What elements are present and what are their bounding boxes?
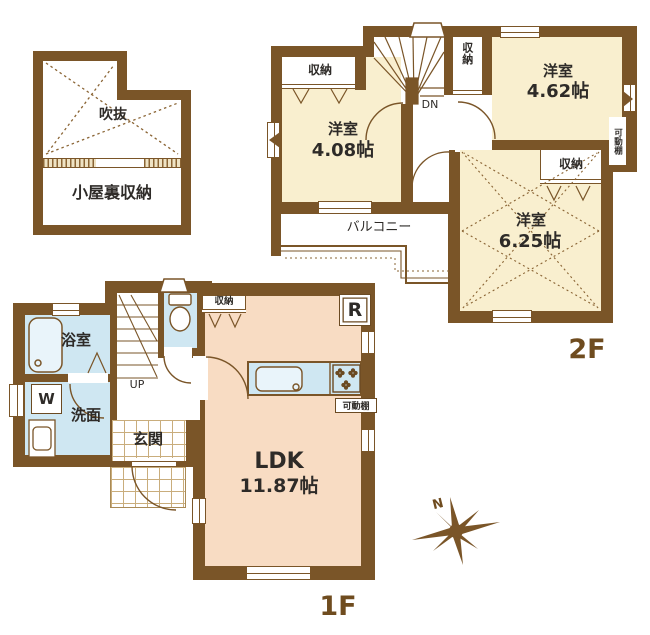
f2-room-east-size: 4.62帖 — [527, 83, 589, 102]
f2-closet-west-rod — [282, 84, 358, 89]
attic-divider — [144, 158, 181, 168]
f1-ldk-name: LDK — [254, 450, 303, 473]
f2-wall-stub — [271, 214, 281, 256]
window — [492, 310, 532, 323]
f1-toilet-room — [164, 293, 197, 348]
f2-closet-south-label: 収納 — [559, 158, 583, 171]
f1-kitchen-counter — [247, 361, 362, 396]
balcony-railing — [281, 246, 452, 283]
f1-bath-label: 浴室 — [61, 333, 91, 349]
f1-stairs-up-label: UP — [130, 379, 145, 391]
f2-movable-shelf-badge: 可動棚 — [609, 117, 626, 165]
attic-void-label: 吹抜 — [99, 108, 127, 123]
window — [192, 498, 206, 524]
f2-room-east-name: 洋室 — [543, 64, 573, 80]
f2-room-west-size: 4.08帖 — [312, 142, 374, 161]
window — [623, 84, 636, 112]
f2-closet-mid-rod — [453, 90, 482, 95]
f1-entrance-label: 玄関 — [133, 432, 163, 448]
f1-ldk-door-gap — [193, 356, 208, 400]
attic-divider — [43, 158, 96, 168]
f1-washer-label: W — [38, 390, 55, 408]
window — [500, 26, 540, 38]
attic-divider-opening — [96, 158, 144, 168]
window — [361, 429, 375, 452]
f1-ldk-room — [205, 296, 361, 566]
f1-bath-door-gap — [68, 373, 108, 383]
f1-ldk-size: 11.87帖 — [239, 477, 318, 497]
f1-floor-label: 1F — [319, 591, 356, 622]
f1-movable-shelf-label: 可動棚 — [342, 399, 369, 412]
window — [9, 384, 24, 417]
window — [267, 122, 280, 158]
f2-room-west-name: 洋室 — [328, 122, 358, 138]
f2-room-south-size: 6.25帖 — [499, 233, 561, 252]
f1-refrigerator-badge: R — [339, 294, 371, 326]
f2-closet-south-rod — [540, 179, 601, 184]
floor-plan: 可動棚 R 可動棚 W — [0, 0, 650, 635]
f1-closet-label: 収納 — [214, 297, 233, 307]
balcony-sliding-door — [318, 201, 372, 214]
window — [52, 303, 80, 316]
f2-room-south-name: 洋室 — [516, 213, 546, 229]
window — [361, 331, 375, 354]
f1-refrigerator-label: R — [348, 299, 363, 321]
f1-closet-rod — [202, 309, 246, 313]
f1-movable-shelf-badge: 可動棚 — [335, 398, 377, 413]
f1-washer-box: W — [31, 384, 62, 414]
f2-stairs-dn-label: DN — [422, 99, 439, 111]
f2-closet-west-label: 収納 — [308, 64, 332, 77]
f1-porch — [110, 467, 186, 508]
attic-storage-label: 小屋裏収納 — [72, 185, 152, 202]
f1-washroom-label: 洗面 — [71, 408, 101, 424]
f2-floor-label: 2F — [568, 334, 605, 365]
f2-closet-mid-label: 収納 — [461, 42, 473, 65]
window — [246, 566, 311, 580]
f1-toilet-door-gap — [164, 347, 192, 359]
f2-movable-shelf-label: 可動棚 — [612, 128, 624, 155]
compass-star — [412, 497, 500, 565]
compass-north-label: N — [431, 496, 445, 513]
f2-wall-stub — [355, 46, 366, 90]
f2-balcony-label: バルコニー — [347, 221, 412, 235]
